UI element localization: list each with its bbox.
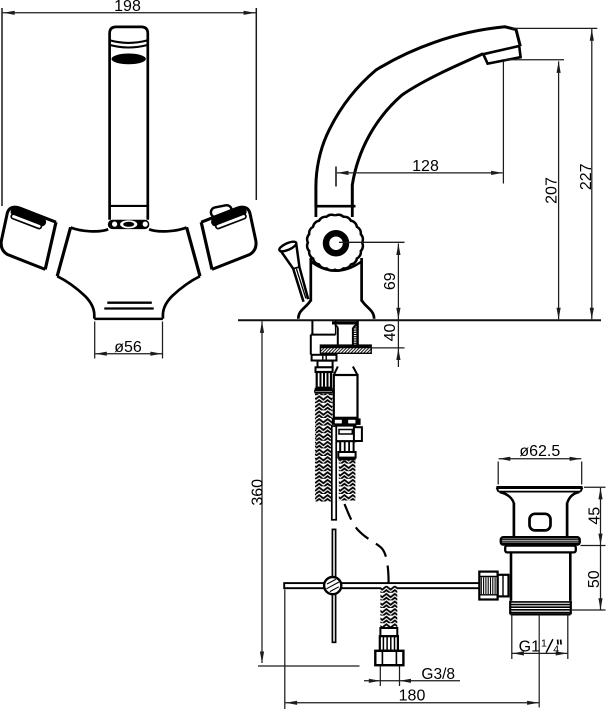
svg-text:ø56: ø56 [114, 339, 142, 356]
svg-text:1: 1 [541, 638, 547, 650]
svg-text:207: 207 [543, 177, 560, 204]
svg-text:4: 4 [553, 643, 559, 655]
svg-text:G3/8: G3/8 [421, 666, 455, 683]
svg-text:227: 227 [578, 163, 595, 190]
svg-text:50: 50 [586, 570, 603, 588]
svg-text:45: 45 [587, 507, 604, 525]
svg-text:G1: G1 [519, 639, 540, 656]
svg-text:198: 198 [114, 0, 141, 15]
svg-text:360: 360 [250, 479, 267, 506]
svg-text:180: 180 [399, 688, 426, 705]
svg-text:128: 128 [412, 158, 439, 175]
svg-text:69: 69 [382, 272, 399, 290]
svg-text:ø62.5: ø62.5 [519, 443, 560, 460]
svg-text:40: 40 [382, 324, 399, 342]
